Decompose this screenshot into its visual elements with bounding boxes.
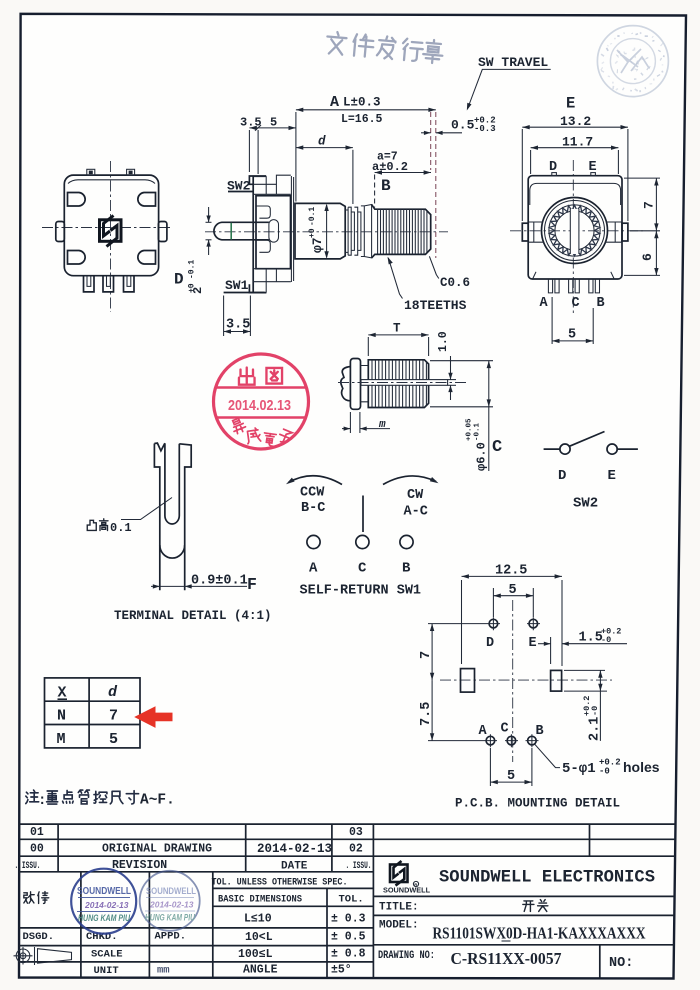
svg-text:SOUNDWELL: SOUNDWELL	[146, 886, 196, 897]
svg-text:ANGLE: ANGLE	[243, 964, 278, 977]
svg-text:CW: CW	[407, 488, 424, 503]
svg-text:7: 7	[642, 201, 657, 209]
svg-text:5: 5	[507, 769, 515, 784]
svg-text:2014-02-13: 2014-02-13	[257, 842, 332, 856]
svg-text:mm: mm	[157, 965, 170, 977]
svg-text:E: E	[608, 468, 616, 484]
svg-text:TERMINAL DETAIL (4:1): TERMINAL DETAIL (4:1)	[114, 609, 272, 623]
svg-text:L±0.3: L±0.3	[343, 96, 381, 110]
svg-text:SW2: SW2	[573, 496, 598, 512]
svg-text:SOUNDWELL: SOUNDWELL	[77, 886, 131, 897]
svg-text:N: N	[57, 708, 66, 725]
svg-text:7: 7	[109, 708, 118, 725]
svg-text::: :	[38, 793, 46, 809]
svg-text:12.5: 12.5	[495, 564, 527, 579]
svg-text:3.5: 3.5	[240, 116, 262, 130]
svg-text:P.C.B. MOUNTING DETAIL: P.C.B. MOUNTING DETAIL	[455, 797, 620, 811]
svg-text:RS1101SWX0D-HA1-KAXXXAXXX: RS1101SWX0D-HA1-KAXXXAXXX	[433, 924, 646, 943]
svg-text:CCW: CCW	[300, 486, 325, 501]
svg-text:B-C: B-C	[301, 501, 325, 516]
svg-text:B: B	[536, 724, 544, 739]
svg-text:± 0.8: ± 0.8	[331, 948, 366, 961]
svg-text:D: D	[558, 468, 566, 484]
svg-text:1.5: 1.5	[579, 631, 603, 646]
svg-text:5: 5	[109, 731, 118, 748]
svg-text:A: A	[540, 296, 549, 311]
svg-text:2014.02.13: 2014.02.13	[228, 398, 291, 414]
svg-text:SW TRAVEL: SW TRAVEL	[478, 55, 548, 70]
svg-text:SCALE: SCALE	[91, 949, 123, 961]
svg-text:+0: +0	[308, 228, 317, 238]
svg-text:TITLE:: TITLE:	[379, 902, 419, 914]
svg-text:REVISION: REVISION	[112, 859, 167, 872]
svg-text:A: A	[309, 561, 318, 577]
svg-text:100≤L: 100≤L	[238, 948, 273, 961]
svg-text:L≤10: L≤10	[244, 913, 272, 926]
svg-text:2014-02-13: 2014-02-13	[84, 900, 129, 910]
svg-text:C: C	[501, 722, 509, 737]
svg-text:d: d	[108, 684, 118, 701]
svg-text:a±0.2: a±0.2	[372, 160, 408, 174]
svg-text:A: A	[479, 724, 488, 739]
svg-text:3.5: 3.5	[226, 318, 250, 333]
svg-text:D: D	[486, 636, 494, 651]
svg-text:5-φ1: 5-φ1	[562, 761, 596, 777]
svg-text:HUNG KAM PIU: HUNG KAM PIU	[145, 913, 195, 923]
svg-text:-0.1: -0.1	[474, 422, 482, 441]
svg-text:SW2: SW2	[227, 179, 251, 194]
svg-text:C: C	[492, 438, 502, 457]
svg-text:-0.1: -0.1	[188, 260, 197, 279]
svg-text:2014-02-13: 2014-02-13	[149, 900, 194, 910]
svg-text:SOUNDWELL: SOUNDWELL	[383, 886, 431, 895]
svg-text:B: B	[381, 177, 391, 195]
svg-text:7: 7	[419, 651, 434, 659]
svg-text:2.1: 2.1	[588, 717, 603, 741]
svg-text:-0.1: -0.1	[308, 207, 317, 226]
svg-text:01: 01	[30, 826, 44, 839]
svg-text:A-C: A-C	[404, 505, 428, 520]
svg-text:18TEETHS: 18TEETHS	[404, 298, 467, 313]
svg-text:BASIC DIMENSIONS: BASIC DIMENSIONS	[218, 894, 302, 906]
svg-text:-0: -0	[599, 767, 610, 777]
svg-text:6: 6	[640, 253, 655, 261]
svg-text:5: 5	[509, 583, 517, 598]
svg-text:03: 03	[349, 826, 363, 839]
svg-text:D: D	[174, 271, 184, 289]
svg-text:TOL. UNLESS OTHERWISE SPEC.: TOL. UNLESS OTHERWISE SPEC.	[212, 877, 348, 889]
svg-text:C: C	[358, 561, 367, 577]
svg-text:φ6.0: φ6.0	[475, 442, 489, 471]
svg-text:DRAWING NO:: DRAWING NO:	[378, 950, 435, 962]
svg-text:L=16.5: L=16.5	[341, 113, 383, 126]
svg-text:10<L: 10<L	[245, 931, 273, 944]
svg-text:± 0.5: ± 0.5	[331, 931, 366, 944]
svg-text:A: A	[330, 94, 339, 111]
svg-text:-0: -0	[590, 706, 600, 716]
svg-text:T: T	[393, 322, 401, 336]
svg-text:5: 5	[270, 116, 277, 130]
svg-text:TOL.: TOL.	[339, 894, 364, 906]
svg-text:00: 00	[30, 843, 44, 856]
svg-text:±5°: ±5°	[331, 964, 352, 977]
svg-text:B: B	[597, 296, 605, 311]
svg-text:MODEL:: MODEL:	[379, 920, 419, 932]
svg-text:-0: -0	[601, 635, 611, 645]
svg-text:DATE: DATE	[281, 861, 308, 873]
svg-text:11.7: 11.7	[562, 135, 593, 150]
svg-text:C0.6: C0.6	[440, 276, 470, 290]
svg-text:holes: holes	[623, 759, 660, 775]
svg-text:0.9±0.1: 0.9±0.1	[191, 574, 248, 589]
svg-text:M: M	[57, 731, 66, 748]
svg-text:ORIGINAL DRAWING: ORIGINAL DRAWING	[102, 843, 212, 856]
svg-text:-0.3: -0.3	[474, 124, 496, 134]
svg-text:+0: +0	[188, 283, 197, 293]
svg-text:d: d	[318, 135, 326, 149]
svg-text:E: E	[529, 636, 537, 651]
svg-text:E: E	[566, 95, 575, 113]
svg-text:0.1: 0.1	[110, 521, 132, 535]
svg-text:D: D	[549, 160, 557, 175]
svg-text:φ7: φ7	[310, 237, 325, 253]
svg-text:NO:: NO:	[609, 956, 633, 971]
svg-text:5: 5	[568, 328, 576, 343]
svg-text:m: m	[378, 419, 386, 431]
svg-text:SELF-RETURN SW1: SELF-RETURN SW1	[300, 584, 422, 599]
svg-text:7.5: 7.5	[419, 702, 434, 726]
svg-text:APPD.: APPD.	[155, 931, 187, 943]
svg-text:UNIT: UNIT	[94, 965, 119, 977]
svg-text:02: 02	[349, 843, 363, 856]
svg-text:B: B	[402, 561, 411, 577]
svg-text:± 0.3: ± 0.3	[331, 913, 366, 926]
svg-text:E: E	[589, 160, 597, 175]
svg-text:DSGD.: DSGD.	[23, 931, 55, 943]
svg-text:0.5: 0.5	[451, 118, 475, 133]
svg-text:13.2: 13.2	[560, 114, 591, 129]
svg-text:SW1: SW1	[225, 278, 249, 293]
svg-text:F: F	[247, 575, 257, 594]
svg-text:C-RS11XX-0057: C-RS11XX-0057	[451, 949, 562, 968]
svg-text:HUNG KAM PIU: HUNG KAM PIU	[78, 913, 130, 923]
svg-text:A~F.: A~F.	[140, 793, 175, 809]
svg-text:C: C	[572, 296, 580, 311]
svg-text:+0.05: +0.05	[466, 418, 474, 441]
svg-text:SOUNDWELL ELECTRONICS: SOUNDWELL ELECTRONICS	[439, 868, 655, 888]
svg-text:. ISSU.: . ISSU.	[15, 860, 41, 872]
svg-text:. ISSU.: . ISSU.	[346, 860, 372, 872]
svg-text:1.0: 1.0	[437, 331, 450, 352]
